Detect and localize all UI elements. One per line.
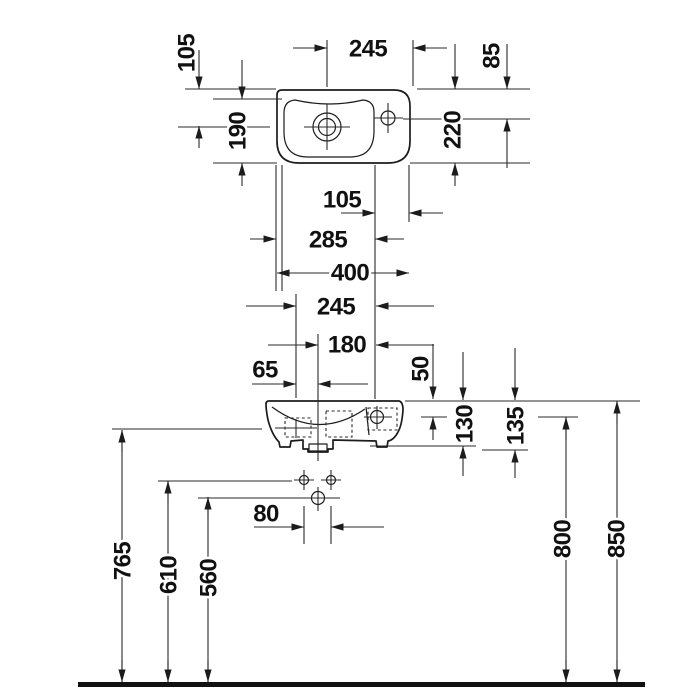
floor-line	[78, 682, 645, 687]
dim-label-top-to-tap-center: 85	[479, 43, 506, 69]
drain-pipe-hole	[312, 487, 325, 511]
dim-label-basin-left-to-tap: 285	[309, 227, 347, 254]
dim-label-drain-to-right-edge: 245	[349, 36, 387, 63]
dim-label-floor-to-fixing-holes: 610	[156, 556, 183, 594]
dim-label-overall-depth: 220	[440, 111, 467, 149]
dim-label-overall-width: 400	[331, 260, 369, 287]
dim-label-floor-to-rim: 850	[604, 520, 631, 558]
dim-label-tap-to-right-edge: 105	[323, 187, 361, 214]
installation-dimensions: 80 765 610 560 800 850	[110, 401, 631, 682]
dim-label-fixing-hole-spacing: 80	[253, 501, 279, 528]
washbasin-dimension-drawing: 245 105 190 220 85 105 285 400	[0, 0, 700, 700]
front-tap-deck-edge	[366, 407, 369, 435]
front-view	[266, 396, 403, 461]
dim-label-top-to-drain-center: 105	[174, 34, 201, 72]
plan-view	[277, 90, 410, 163]
dim-label-rim-to-tap-front: 50	[408, 356, 435, 382]
dim-label-floor-to-drain-pipe: 560	[196, 559, 223, 597]
front-outer-outline	[266, 401, 403, 452]
dim-label-floor-to-tap: 800	[550, 520, 577, 558]
dim-label-rim-to-body-bottom: 130	[452, 405, 479, 443]
dim-label-floor-to-bracket: 765	[110, 542, 137, 580]
dim-label-basin-depth: 190	[225, 112, 252, 150]
front-hidden-bracket-right	[368, 408, 397, 430]
wall-fixing-hole-right	[321, 470, 341, 490]
dim-label-drain-to-tap: 180	[328, 332, 366, 359]
plan-drain-hole	[304, 104, 350, 150]
dim-label-rim-to-outlet-bottom: 135	[503, 407, 530, 445]
technical-drawing-page: 245 105 190 220 85 105 285 400	[0, 0, 700, 700]
front-dimensions: 245 180 65 50 130 135	[246, 294, 640, 478]
dim-label-bracket-to-drain: 65	[252, 357, 278, 384]
dim-label-bracket-to-tap: 245	[317, 294, 355, 321]
plan-tap-hole	[374, 103, 403, 133]
wall-fixing-hole-left	[294, 470, 314, 490]
plan-inner-basin	[284, 100, 374, 157]
